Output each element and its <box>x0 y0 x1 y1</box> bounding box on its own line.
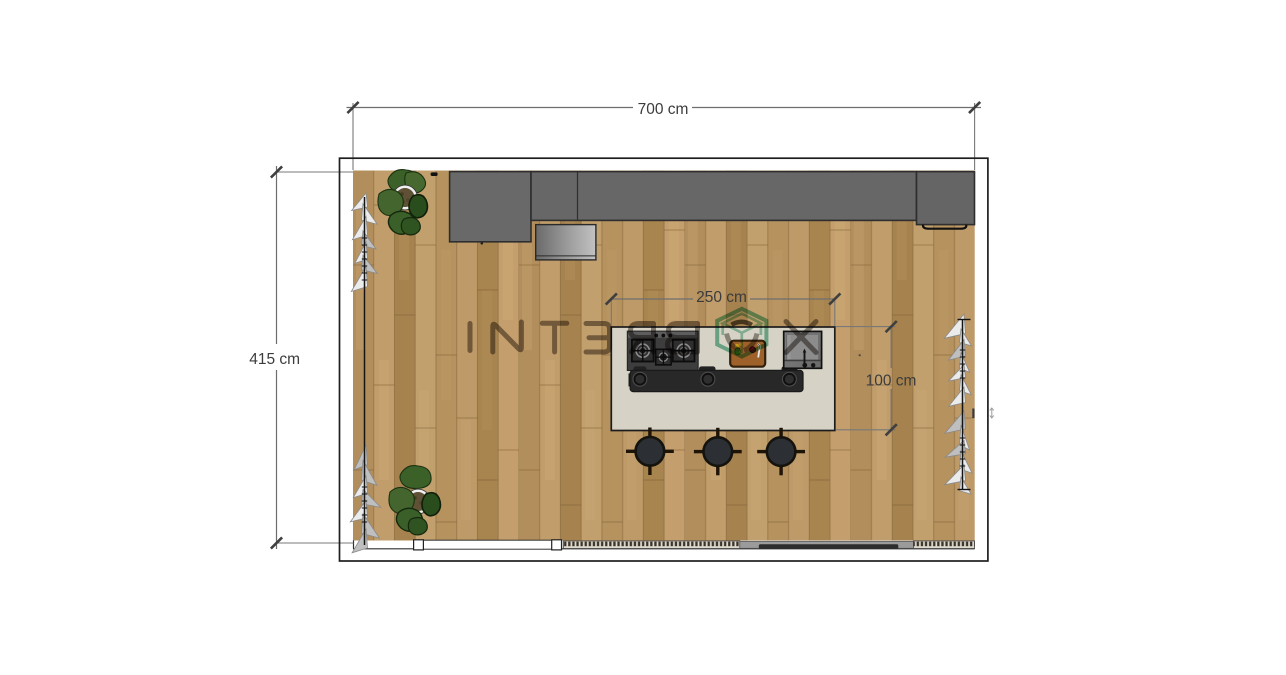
svg-text:250 cm: 250 cm <box>696 289 747 306</box>
svg-text:415 cm: 415 cm <box>249 351 300 368</box>
svg-text:100 cm: 100 cm <box>866 373 917 390</box>
svg-text:700 cm: 700 cm <box>638 101 689 118</box>
